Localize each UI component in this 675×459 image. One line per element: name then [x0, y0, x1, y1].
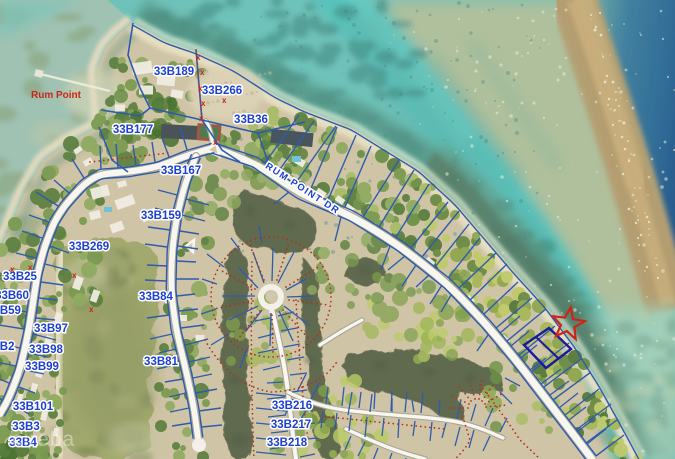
svg-text:x: x	[199, 114, 204, 123]
svg-text:x: x	[200, 68, 205, 77]
svg-text:x: x	[89, 305, 94, 314]
svg-text:x: x	[222, 96, 227, 105]
svg-text:x: x	[213, 138, 218, 147]
svg-text:33B269: 33B269	[69, 241, 109, 253]
svg-text:33B84: 33B84	[139, 291, 173, 303]
svg-text:33B98: 33B98	[29, 344, 63, 356]
svg-text:x: x	[28, 263, 33, 272]
svg-text:33B60: 33B60	[0, 290, 29, 302]
svg-text:33B81: 33B81	[144, 356, 178, 368]
svg-text:33B97: 33B97	[34, 323, 68, 335]
svg-text:33B36: 33B36	[234, 114, 268, 126]
svg-text:x: x	[196, 53, 201, 62]
svg-text:cireba: cireba	[12, 428, 75, 451]
svg-text:33B101: 33B101	[13, 401, 54, 413]
svg-text:33B25: 33B25	[3, 271, 37, 283]
svg-text:33B216: 33B216	[272, 400, 312, 412]
svg-text:33B159: 33B159	[141, 210, 181, 222]
svg-text:33B218: 33B218	[267, 437, 308, 449]
svg-text:33B99: 33B99	[25, 361, 59, 373]
svg-text:33B167: 33B167	[161, 165, 201, 177]
svg-text:x: x	[72, 271, 77, 280]
svg-text:33B177: 33B177	[113, 124, 153, 136]
svg-text:x: x	[201, 99, 206, 108]
svg-text:Rum Point: Rum Point	[31, 90, 82, 101]
svg-text:x: x	[10, 265, 15, 274]
svg-text:33B217: 33B217	[271, 419, 311, 431]
svg-text:33B189: 33B189	[154, 66, 194, 78]
svg-text:33B59: 33B59	[0, 305, 21, 317]
svg-text:33B2: 33B2	[0, 341, 15, 353]
svg-text:x: x	[198, 84, 203, 93]
